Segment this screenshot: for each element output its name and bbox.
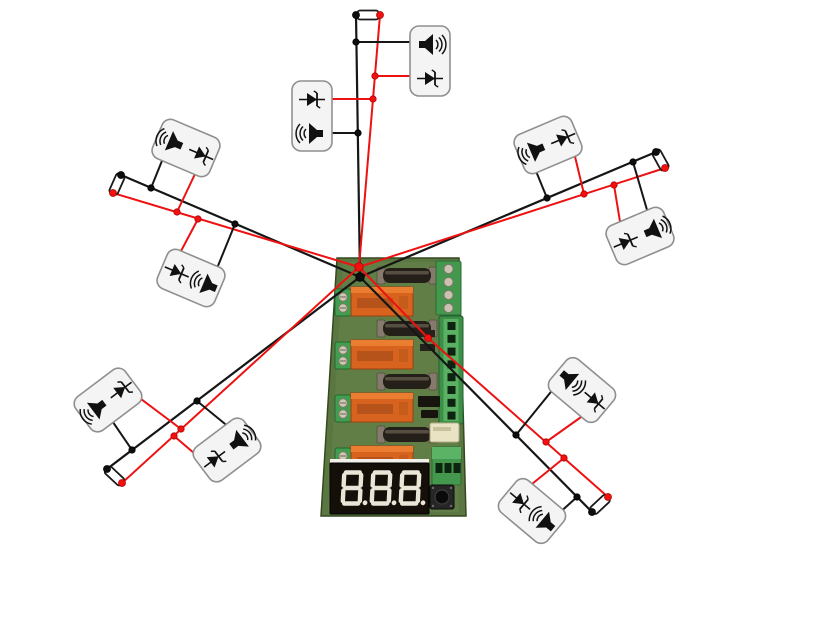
module-body bbox=[511, 114, 584, 177]
junction-dot-black bbox=[544, 195, 550, 201]
buzzer-diode-module-lower-right-outer[interactable] bbox=[545, 354, 619, 426]
junction-dot-black bbox=[353, 39, 359, 45]
junction-dot-red bbox=[171, 433, 177, 439]
wire-red-upper-left[interactable] bbox=[113, 193, 359, 267]
wire-black-upper-right[interactable] bbox=[360, 152, 656, 277]
seven-segment-display bbox=[330, 459, 429, 514]
fuse-top[interactable] bbox=[358, 11, 379, 20]
wire-black-upper-left[interactable] bbox=[121, 175, 360, 277]
junction-dot-red bbox=[174, 209, 180, 215]
junction-dot-black bbox=[355, 130, 361, 136]
junction-dot-red bbox=[543, 439, 549, 445]
module-body bbox=[190, 415, 265, 486]
relay-board[interactable] bbox=[321, 258, 466, 516]
wire-black-top[interactable] bbox=[356, 15, 360, 277]
junction-dot-black bbox=[356, 273, 365, 282]
module-body bbox=[603, 205, 676, 268]
junction-dot-black bbox=[148, 185, 154, 191]
buzzer-diode-module-lower-left-outer[interactable] bbox=[70, 365, 145, 436]
junction-dot-black bbox=[653, 149, 660, 156]
junction-dot-red bbox=[178, 426, 184, 432]
junction-dot-red bbox=[581, 191, 587, 197]
junction-dot-red bbox=[425, 335, 432, 342]
buzzer-diode-module-upper-left-inner[interactable] bbox=[154, 247, 227, 310]
junction-dot-red bbox=[370, 96, 376, 102]
buzzer-diode-module-top-left[interactable] bbox=[292, 81, 332, 151]
wiring-diagram bbox=[0, 0, 835, 618]
module-body bbox=[71, 365, 146, 436]
junction-dot-black bbox=[194, 398, 200, 404]
ic-chip bbox=[418, 396, 440, 407]
junction-dot-red bbox=[605, 494, 612, 501]
opto-relay bbox=[430, 423, 459, 442]
buzzer-diode-module-upper-left-outer[interactable] bbox=[149, 116, 223, 179]
junction-dot-red bbox=[110, 190, 117, 197]
junction-dot-red bbox=[119, 480, 126, 487]
bottom-terminal bbox=[432, 447, 461, 485]
fuse-body bbox=[358, 11, 379, 20]
junction-dot-black bbox=[589, 509, 596, 516]
junction-dot-red bbox=[377, 12, 384, 19]
junction-dot-black bbox=[574, 494, 580, 500]
junction-dot-black bbox=[104, 466, 111, 473]
push-button[interactable] bbox=[430, 485, 454, 509]
junction-dot-red bbox=[355, 263, 364, 272]
junction-dot-red bbox=[372, 73, 378, 79]
ic-chip bbox=[421, 410, 438, 418]
buzzer-diode-module-lower-right-inner[interactable] bbox=[495, 475, 569, 547]
junction-dot-red bbox=[662, 165, 669, 172]
junction-dot-black bbox=[353, 12, 360, 19]
junction-dot-red bbox=[561, 455, 567, 461]
buzzer-diode-module-upper-right-outer[interactable] bbox=[511, 114, 585, 177]
screw-terminal-block bbox=[436, 261, 461, 315]
module-body bbox=[149, 117, 222, 180]
junction-dot-red bbox=[195, 216, 201, 222]
junction-dot-black bbox=[513, 432, 519, 438]
diagram-stage bbox=[0, 0, 835, 618]
buzzer-diode-module-lower-left-inner[interactable] bbox=[190, 414, 266, 486]
junction-dot-black bbox=[118, 172, 125, 179]
junction-dot-black bbox=[630, 159, 636, 165]
junction-dot-black bbox=[129, 447, 135, 453]
wire-red-top[interactable] bbox=[359, 15, 380, 267]
module-body bbox=[495, 475, 569, 547]
junction-dot-black bbox=[232, 221, 238, 227]
junction-dot-red bbox=[611, 182, 617, 188]
buzzer-diode-module-top-right[interactable] bbox=[410, 26, 450, 96]
buzzer-diode-module-upper-right-inner[interactable] bbox=[603, 204, 678, 267]
